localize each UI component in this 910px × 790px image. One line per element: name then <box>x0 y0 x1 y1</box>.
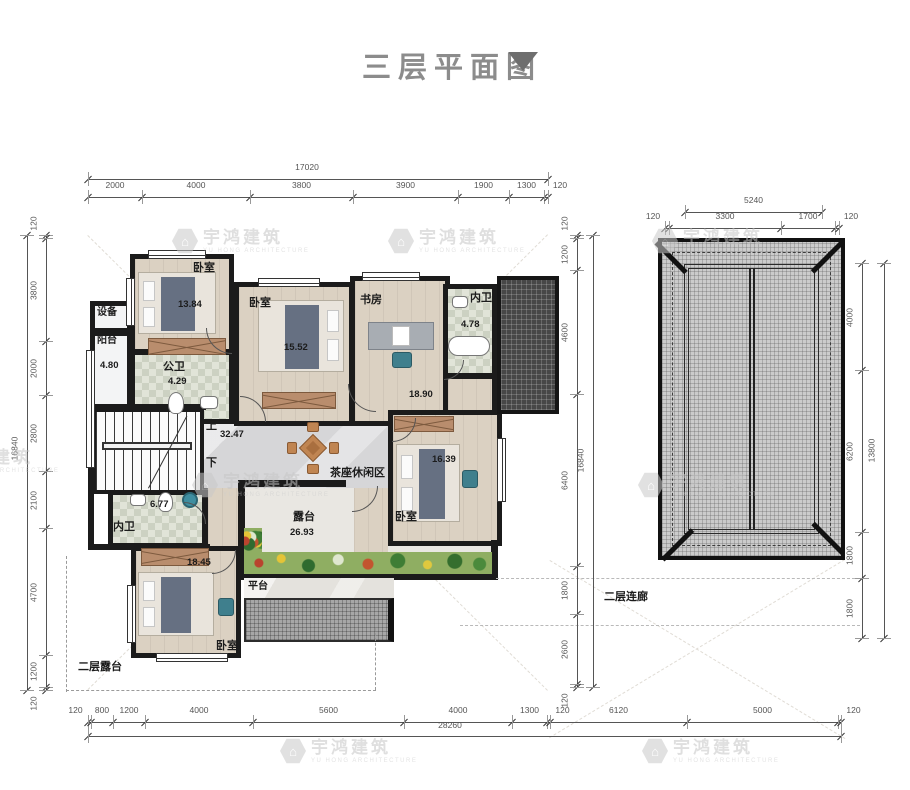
dim-label: 5000 <box>723 706 803 717</box>
room-area: 4.80 <box>100 361 119 371</box>
bathtub <box>448 336 490 356</box>
dim-ext <box>841 729 842 743</box>
staircase <box>92 408 204 494</box>
room-area: 6.77 <box>150 500 169 510</box>
dim-line <box>685 212 822 213</box>
tea-chair <box>307 422 319 432</box>
dim-ext <box>39 471 53 472</box>
wall <box>90 329 132 333</box>
room-label: 卧室 <box>395 512 417 523</box>
dim-label: 28260 <box>410 721 490 732</box>
dim-ext <box>855 578 869 579</box>
window <box>126 278 135 326</box>
window <box>258 278 320 287</box>
dim-label: 120 <box>561 660 572 740</box>
dim-ext <box>88 172 89 186</box>
room-label: 内卫 <box>113 522 135 533</box>
dim-label: 2100 <box>30 460 41 540</box>
desk-chair <box>392 352 412 368</box>
dim-ext <box>113 715 114 729</box>
dim-label: 2000 <box>75 181 155 192</box>
dim-ext <box>250 190 251 204</box>
dim-ext <box>570 394 584 395</box>
dim-ext <box>570 614 584 615</box>
dim-label: 1200 <box>89 706 169 717</box>
stair-down-label: 下 <box>206 458 217 469</box>
dim-line <box>88 736 841 737</box>
dim-line <box>88 179 548 180</box>
watermark: ⌂ 宇鸿建筑YU HONG ARCHITECTURE <box>388 228 525 254</box>
dim-line <box>884 263 885 638</box>
room-label: 露台 <box>293 512 315 523</box>
dim-ext <box>39 655 53 656</box>
dim-label: 1800 <box>846 569 857 649</box>
dim-ext <box>142 190 143 204</box>
roof-ridge <box>753 268 755 530</box>
toilet <box>168 392 184 414</box>
dim-ext <box>665 221 666 235</box>
dim-ext <box>841 715 842 729</box>
dim-ext <box>548 190 549 204</box>
dim-label: 6120 <box>579 706 659 717</box>
dim-label: 120 <box>30 663 41 743</box>
dim-label: 3900 <box>366 181 446 192</box>
window <box>497 438 506 502</box>
dim-label: 3800 <box>30 250 41 330</box>
desk-paper <box>392 326 410 346</box>
wardrobe <box>262 392 336 409</box>
dim-label: 6200 <box>846 412 857 492</box>
dim-line <box>593 235 594 687</box>
chevron-down-icon[interactable] <box>508 52 538 71</box>
room-area: 4.78 <box>461 320 480 330</box>
dim-ext <box>550 715 551 729</box>
dim-ext <box>544 190 545 204</box>
dim-label: 4000 <box>156 181 236 192</box>
tea-chair <box>307 464 319 474</box>
dim-ext <box>88 729 89 743</box>
paved-platform <box>244 598 394 642</box>
dim-ext <box>20 235 34 236</box>
dim-ext <box>404 715 405 729</box>
room-label: 书房 <box>360 295 382 306</box>
dim-label: 4000 <box>846 277 857 357</box>
dim-line <box>27 235 28 690</box>
garden-strip <box>244 552 492 574</box>
chair <box>462 470 478 488</box>
garden-patch <box>244 528 262 554</box>
dim-ext <box>39 528 53 529</box>
dim-ext <box>458 190 459 204</box>
terrace-2f-outline <box>66 690 376 691</box>
dim-line <box>46 235 47 690</box>
dim-label: 4600 <box>561 293 572 373</box>
room-area: 18.90 <box>409 390 433 400</box>
room-area: 16.39 <box>432 455 456 465</box>
dim-label: 1200 <box>561 215 572 295</box>
dim-label: 5240 <box>714 196 794 207</box>
brand-logo-icon: ⌂ <box>642 738 668 764</box>
dim-label: 5600 <box>289 706 369 717</box>
dim-label: 16840 <box>577 421 588 501</box>
dim-ext <box>353 190 354 204</box>
brand-logo-icon: ⌂ <box>280 738 306 764</box>
chair <box>218 598 234 616</box>
dim-line <box>862 263 863 638</box>
dim-ext <box>586 687 600 688</box>
room-label: 卧室 <box>193 263 215 274</box>
dim-ext <box>39 238 53 239</box>
dim-line <box>88 197 548 198</box>
roof-inner-rect <box>684 264 819 534</box>
dim-ext <box>39 690 53 691</box>
room-area: 26.93 <box>290 528 314 538</box>
dim-ext <box>548 172 549 186</box>
sink <box>130 494 146 506</box>
dim-ext <box>88 190 89 204</box>
room-label: 内卫 <box>470 293 492 304</box>
dim-ext <box>855 263 869 264</box>
dim-label: 4000 <box>159 706 239 717</box>
window <box>156 653 228 662</box>
wall <box>238 480 346 487</box>
floor-plan-sheet: 三层平面图 <box>0 0 910 790</box>
wall <box>88 404 206 410</box>
room-label: 卧室 <box>216 641 238 652</box>
dim-label: 4700 <box>30 552 41 632</box>
room-area: 15.52 <box>284 343 308 353</box>
dim-ext <box>855 638 869 639</box>
watermark: ⌂ 宇鸿建筑YU HONG ARCHITECTURE <box>280 738 417 764</box>
terrace-2f-outline <box>375 628 376 690</box>
dim-ext <box>822 205 823 219</box>
dim-ext <box>586 235 600 236</box>
dim-ext <box>512 715 513 729</box>
dim-ext <box>570 566 584 567</box>
corridor-2f-label: 二层连廊 <box>604 592 648 603</box>
room-label: 阳台 <box>97 336 117 346</box>
dim-label: 120 <box>811 212 891 223</box>
sink <box>200 396 218 409</box>
dim-ext <box>839 221 840 235</box>
terrace-2f-label: 二层露台 <box>78 662 122 673</box>
tea-zone-label: 茶座休闲区 <box>330 468 385 479</box>
dim-ext <box>781 221 782 235</box>
dim-label: 120 <box>814 706 894 717</box>
stair-up-label: 上 <box>206 421 217 432</box>
dim-ext <box>855 532 869 533</box>
dim-label: 17020 <box>267 163 347 174</box>
room-label: 卧室 <box>249 298 271 309</box>
bed <box>258 300 344 372</box>
dim-line <box>665 228 839 229</box>
window <box>86 350 95 468</box>
room-area: 18.45 <box>187 558 211 568</box>
window <box>148 250 206 259</box>
room-area: 4.29 <box>168 377 187 387</box>
roof-patch <box>497 276 559 414</box>
dim-ext <box>145 715 146 729</box>
room-area: 13.84 <box>178 300 202 310</box>
dim-ext <box>20 690 34 691</box>
hall-area: 32.47 <box>220 430 244 440</box>
dim-ext <box>877 638 891 639</box>
dim-label: 6400 <box>561 441 572 521</box>
dim-label: 3300 <box>685 212 765 223</box>
bed <box>138 572 214 636</box>
dim-ext <box>855 370 869 371</box>
dim-label: 16840 <box>11 409 22 489</box>
sink <box>452 296 468 308</box>
tea-chair <box>287 442 297 454</box>
dim-ext <box>877 263 891 264</box>
dim-ext <box>91 715 92 729</box>
dim-ext <box>570 238 584 239</box>
stair-handrail <box>102 442 192 450</box>
dim-label: 3800 <box>262 181 342 192</box>
platform-label: 平台 <box>248 582 268 592</box>
dim-ext <box>509 190 510 204</box>
watermark: ⌂ 宇鸿建筑YU HONG ARCHITECTURE <box>642 738 779 764</box>
dim-label: 4000 <box>418 706 498 717</box>
brand-logo-icon: ⌂ <box>388 228 414 254</box>
tea-chair <box>329 442 339 454</box>
guide-dash <box>496 578 860 579</box>
bed <box>138 272 216 334</box>
dim-ext <box>570 687 584 688</box>
dim-ext <box>685 205 686 219</box>
dim-ext <box>669 221 670 235</box>
dim-label: 13800 <box>868 411 879 491</box>
dim-ext <box>253 715 254 729</box>
terrace-2f-outline <box>66 556 67 692</box>
room-label: 设备 <box>97 308 117 318</box>
dim-ext <box>39 395 53 396</box>
dim-ext <box>570 270 584 271</box>
dim-label: 120 <box>613 212 693 223</box>
dim-ext <box>835 221 836 235</box>
corridor-floor <box>208 488 242 550</box>
dim-ext <box>687 715 688 729</box>
window <box>362 272 420 281</box>
guide-dash <box>460 625 860 626</box>
dim-ext <box>39 341 53 342</box>
roof-ridge <box>749 268 751 530</box>
room-label: 公卫 <box>163 362 185 373</box>
wall <box>491 540 498 578</box>
window <box>127 585 136 643</box>
